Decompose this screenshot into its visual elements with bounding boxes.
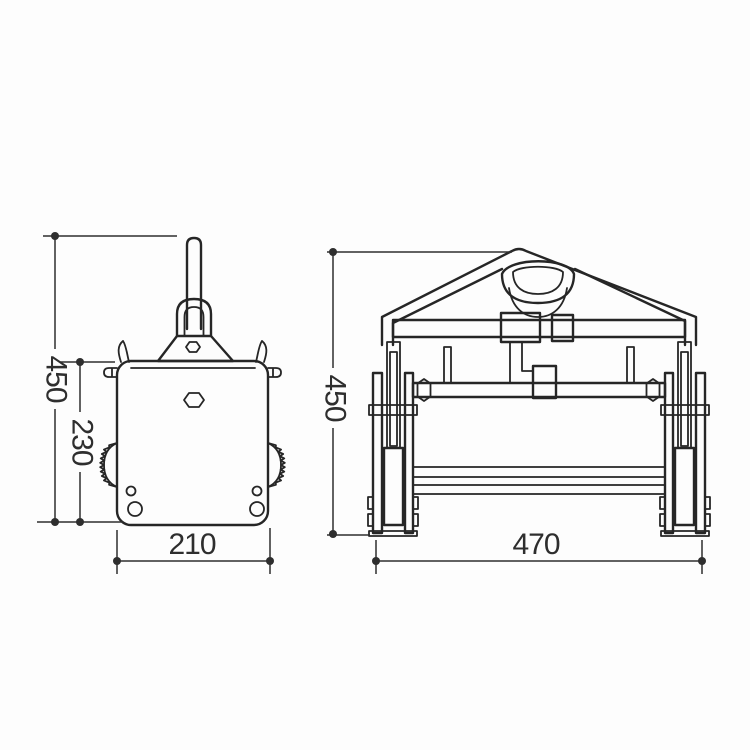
left-column-outer-plate	[373, 373, 382, 533]
right-column-slider-block	[675, 448, 694, 525]
serrated-cam-right	[268, 443, 285, 487]
right-column-outer-plate	[696, 373, 705, 533]
dim-value-front-overall-width: 470	[512, 528, 559, 561]
dim-dot	[372, 557, 380, 565]
drawing-canvas: 450 230 210 450 470	[0, 0, 750, 750]
bracket-nut	[186, 342, 200, 352]
lifting-clamp-technical-drawing: 450 230 210 450 470	[0, 0, 750, 750]
clevis-outer	[177, 299, 211, 336]
right-pin	[268, 368, 281, 377]
left-pin	[104, 368, 117, 377]
dim-dot	[329, 248, 337, 256]
dim-dot	[698, 557, 706, 565]
a-frame-inner-left	[393, 269, 502, 345]
mounting-bracket	[158, 336, 233, 361]
left-column-rod-inner	[390, 352, 397, 446]
clamp-beam	[413, 383, 665, 397]
dimension-front-overall-width: 470	[372, 528, 706, 574]
dimension-side-body-width: 210	[113, 528, 274, 574]
left-column-slider-block	[384, 448, 403, 525]
left-column-tab-2	[368, 514, 373, 526]
front-view	[368, 249, 710, 536]
right-column-tab-4	[660, 514, 665, 526]
right-column-rod-inner	[681, 352, 688, 446]
hole-small-left	[127, 487, 136, 496]
guide-post-right	[627, 347, 634, 383]
dim-dot	[51, 232, 59, 240]
dim-dot	[113, 557, 121, 565]
lifting-eye-hole	[513, 267, 563, 294]
right-column-tab-1	[705, 497, 710, 509]
left-column-rod	[387, 342, 400, 448]
lower-bar-upper	[413, 467, 665, 477]
hole-large-right	[250, 502, 264, 516]
serrated-cam-left	[100, 443, 117, 487]
right-column-inner-plate	[665, 373, 673, 533]
body-nut	[184, 393, 204, 407]
right-column-tab-3	[660, 497, 665, 509]
right-hook	[256, 341, 266, 362]
linkage-strip	[510, 342, 533, 383]
clamp-body	[117, 361, 268, 525]
dim-value-side-body-height: 230	[66, 418, 99, 465]
lifting-eye	[502, 261, 574, 317]
right-column-rod	[678, 342, 691, 448]
dim-dot	[329, 530, 337, 538]
hole-small-right	[253, 487, 262, 496]
shackle-bar	[187, 238, 201, 329]
right-column	[660, 342, 710, 536]
hole-large-left	[128, 502, 142, 516]
right-column-tab-2	[705, 514, 710, 526]
guide-post-left	[444, 347, 451, 383]
dim-dot	[266, 557, 274, 565]
left-column-tab-4	[413, 514, 418, 526]
dim-value-front-overall-height: 450	[319, 374, 352, 421]
side-view	[100, 238, 285, 525]
left-column-cross-plate	[369, 405, 417, 415]
lower-bar-lower	[413, 485, 665, 494]
dim-dot	[76, 358, 84, 366]
right-column-cross-plate	[661, 405, 709, 415]
left-column-tab-1	[368, 497, 373, 509]
dim-value-side-body-width: 210	[168, 528, 215, 561]
left-column-tab-3	[413, 497, 418, 509]
left-hook	[119, 341, 129, 362]
center-mechanism	[501, 313, 573, 398]
left-column	[368, 342, 418, 536]
